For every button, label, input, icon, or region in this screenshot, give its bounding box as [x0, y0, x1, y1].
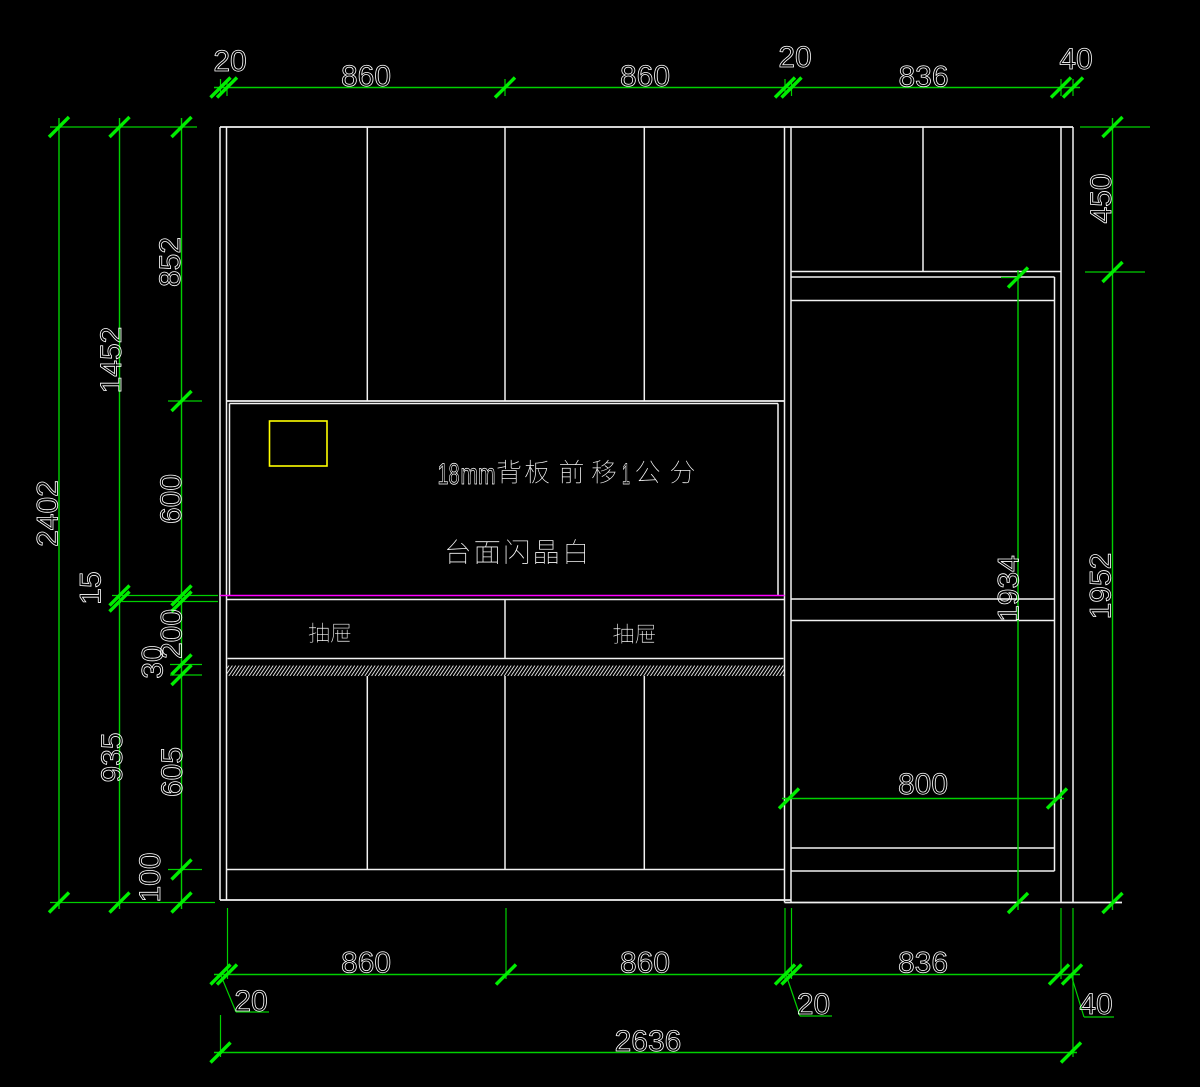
svg-text:836: 836	[898, 947, 948, 980]
svg-text:935: 935	[96, 732, 129, 782]
svg-text:2636: 2636	[615, 1025, 682, 1058]
svg-text:1452: 1452	[95, 327, 128, 394]
svg-text:20: 20	[234, 985, 267, 1018]
svg-text:1952: 1952	[1085, 553, 1118, 620]
svg-text:800: 800	[898, 768, 948, 801]
svg-text:2402: 2402	[32, 480, 65, 547]
svg-text:1934: 1934	[993, 555, 1026, 622]
svg-text:100: 100	[134, 852, 167, 902]
svg-text:450: 450	[1085, 173, 1118, 223]
svg-text:860: 860	[620, 947, 670, 980]
svg-text:40: 40	[1059, 43, 1092, 76]
svg-text:852: 852	[154, 237, 187, 287]
svg-text:20: 20	[213, 45, 246, 78]
svg-text:20: 20	[797, 988, 830, 1021]
svg-text:860: 860	[341, 60, 391, 93]
svg-text:605: 605	[156, 747, 189, 797]
svg-text:30: 30	[137, 645, 170, 678]
svg-text:15: 15	[75, 571, 108, 604]
svg-text:860: 860	[341, 947, 391, 980]
svg-text:1: 1	[622, 458, 630, 491]
svg-text:mm: mm	[461, 458, 496, 491]
svg-text:20: 20	[778, 41, 811, 74]
svg-text:40: 40	[1079, 988, 1112, 1021]
svg-text:860: 860	[620, 60, 670, 93]
svg-text:836: 836	[898, 61, 948, 94]
svg-text:18: 18	[438, 458, 460, 491]
svg-text:600: 600	[155, 474, 188, 524]
